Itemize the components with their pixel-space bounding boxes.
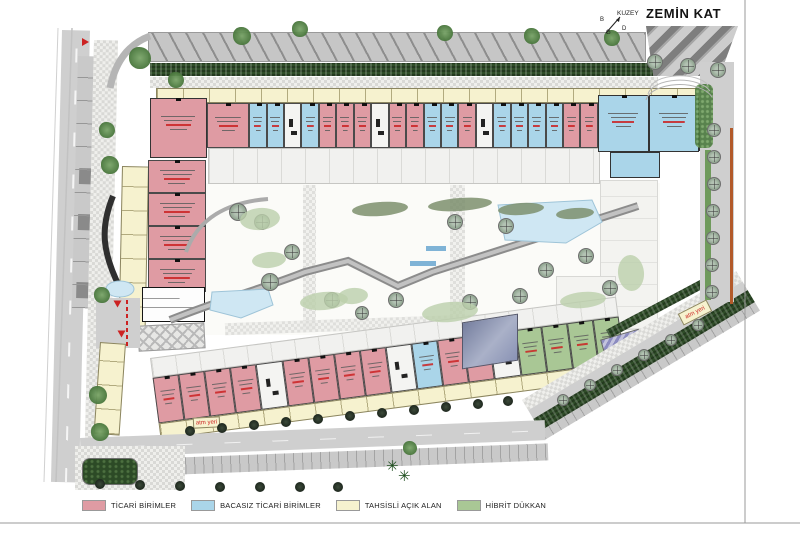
legend-swatch [457, 500, 481, 511]
parking-ramp [137, 322, 205, 351]
unit-cell [371, 103, 388, 148]
unit-cell [148, 226, 206, 259]
unit-cell [150, 98, 207, 158]
courtyard-walk-vertical [450, 185, 465, 330]
right-green-strip [705, 150, 711, 300]
unit-cell [580, 103, 597, 148]
palm-tree-icon: ✳ [398, 469, 411, 484]
unit-cell [610, 152, 660, 178]
legend-label: TAHSİSLİ AÇIK ALAN [365, 501, 442, 510]
unit-cell [336, 103, 353, 148]
legend: TİCARİ BİRİMLERBACASIZ TİCARİ BİRİMLERTA… [82, 500, 561, 511]
unit-cell [389, 103, 406, 148]
interior-corridor-top [208, 148, 600, 184]
unit-cell [207, 103, 249, 148]
legend-item-hibrit: HİBRİT DÜKKAN [457, 500, 546, 511]
unit-cell [476, 103, 493, 148]
top-parking-row [148, 32, 646, 62]
site-boundary-line [730, 128, 733, 304]
planting-bed [82, 458, 138, 485]
top-sidewalk-hatch [150, 77, 658, 88]
legend-label: TİCARİ BİRİMLER [111, 501, 176, 510]
unit-cell-large [598, 95, 649, 152]
compass-south: G [606, 30, 611, 36]
unit-cell [511, 103, 528, 148]
unit-cell [319, 103, 336, 148]
planting-bed [695, 84, 713, 148]
tree-icon [295, 482, 305, 492]
entry-arrow [118, 331, 126, 338]
entry-marking [126, 300, 128, 346]
sheet-title: ZEMİN KAT [646, 6, 721, 21]
shop-row-top [207, 103, 598, 148]
unit-cell [424, 103, 441, 148]
tree-icon [333, 482, 343, 492]
top-hedge-row [150, 63, 658, 76]
courtyard-walk-vertical [303, 185, 316, 330]
legend-item-ticari: TİCARİ BİRİMLER [82, 500, 176, 511]
legend-item-bacasiz: BACASIZ TİCARİ BİRİMLER [191, 500, 321, 511]
legend-item-tahsisli: TAHSİSLİ AÇIK ALAN [336, 500, 442, 511]
entry-arrow [82, 38, 89, 46]
unit-cell [406, 103, 423, 148]
unit-cell [267, 103, 284, 148]
unit-cell-large [649, 95, 699, 152]
unit-cell [546, 103, 563, 148]
unit-cell [441, 103, 458, 148]
atm-box: atm yeri [193, 416, 221, 428]
allocated-open-strip-left-lower [94, 342, 126, 436]
unit-cell [284, 103, 301, 148]
unit-cell [301, 103, 318, 148]
legend-swatch [191, 500, 215, 511]
legend-swatch [336, 500, 360, 511]
atm-label: atm yeri [196, 419, 218, 426]
entry-building [142, 287, 205, 322]
north-arrow-icon [596, 10, 630, 40]
plan-sheet: ✳ ✳ atm yeri atm yeri ZEMİN KAT KUZEY B … [0, 0, 800, 533]
glass-roof [462, 314, 518, 370]
tree-icon [255, 482, 265, 492]
tree-icon [215, 482, 225, 492]
unit-cell [563, 103, 580, 148]
unit-cell [354, 103, 371, 148]
unit-cell [458, 103, 475, 148]
compass-west: B [600, 17, 604, 23]
entry-arrow [114, 301, 122, 308]
shop-column-left [148, 160, 206, 292]
unit-cell [493, 103, 510, 148]
unit-cell [249, 103, 266, 148]
legend-label: BACASIZ TİCARİ BİRİMLER [220, 501, 321, 510]
unit-cell [148, 193, 206, 226]
palm-tree-icon: ✳ [386, 459, 399, 474]
compass-east: D [622, 26, 626, 32]
legend-swatch [82, 500, 106, 511]
unit-cell [528, 103, 545, 148]
legend-label: HİBRİT DÜKKAN [486, 501, 546, 510]
unit-cell [148, 160, 206, 193]
